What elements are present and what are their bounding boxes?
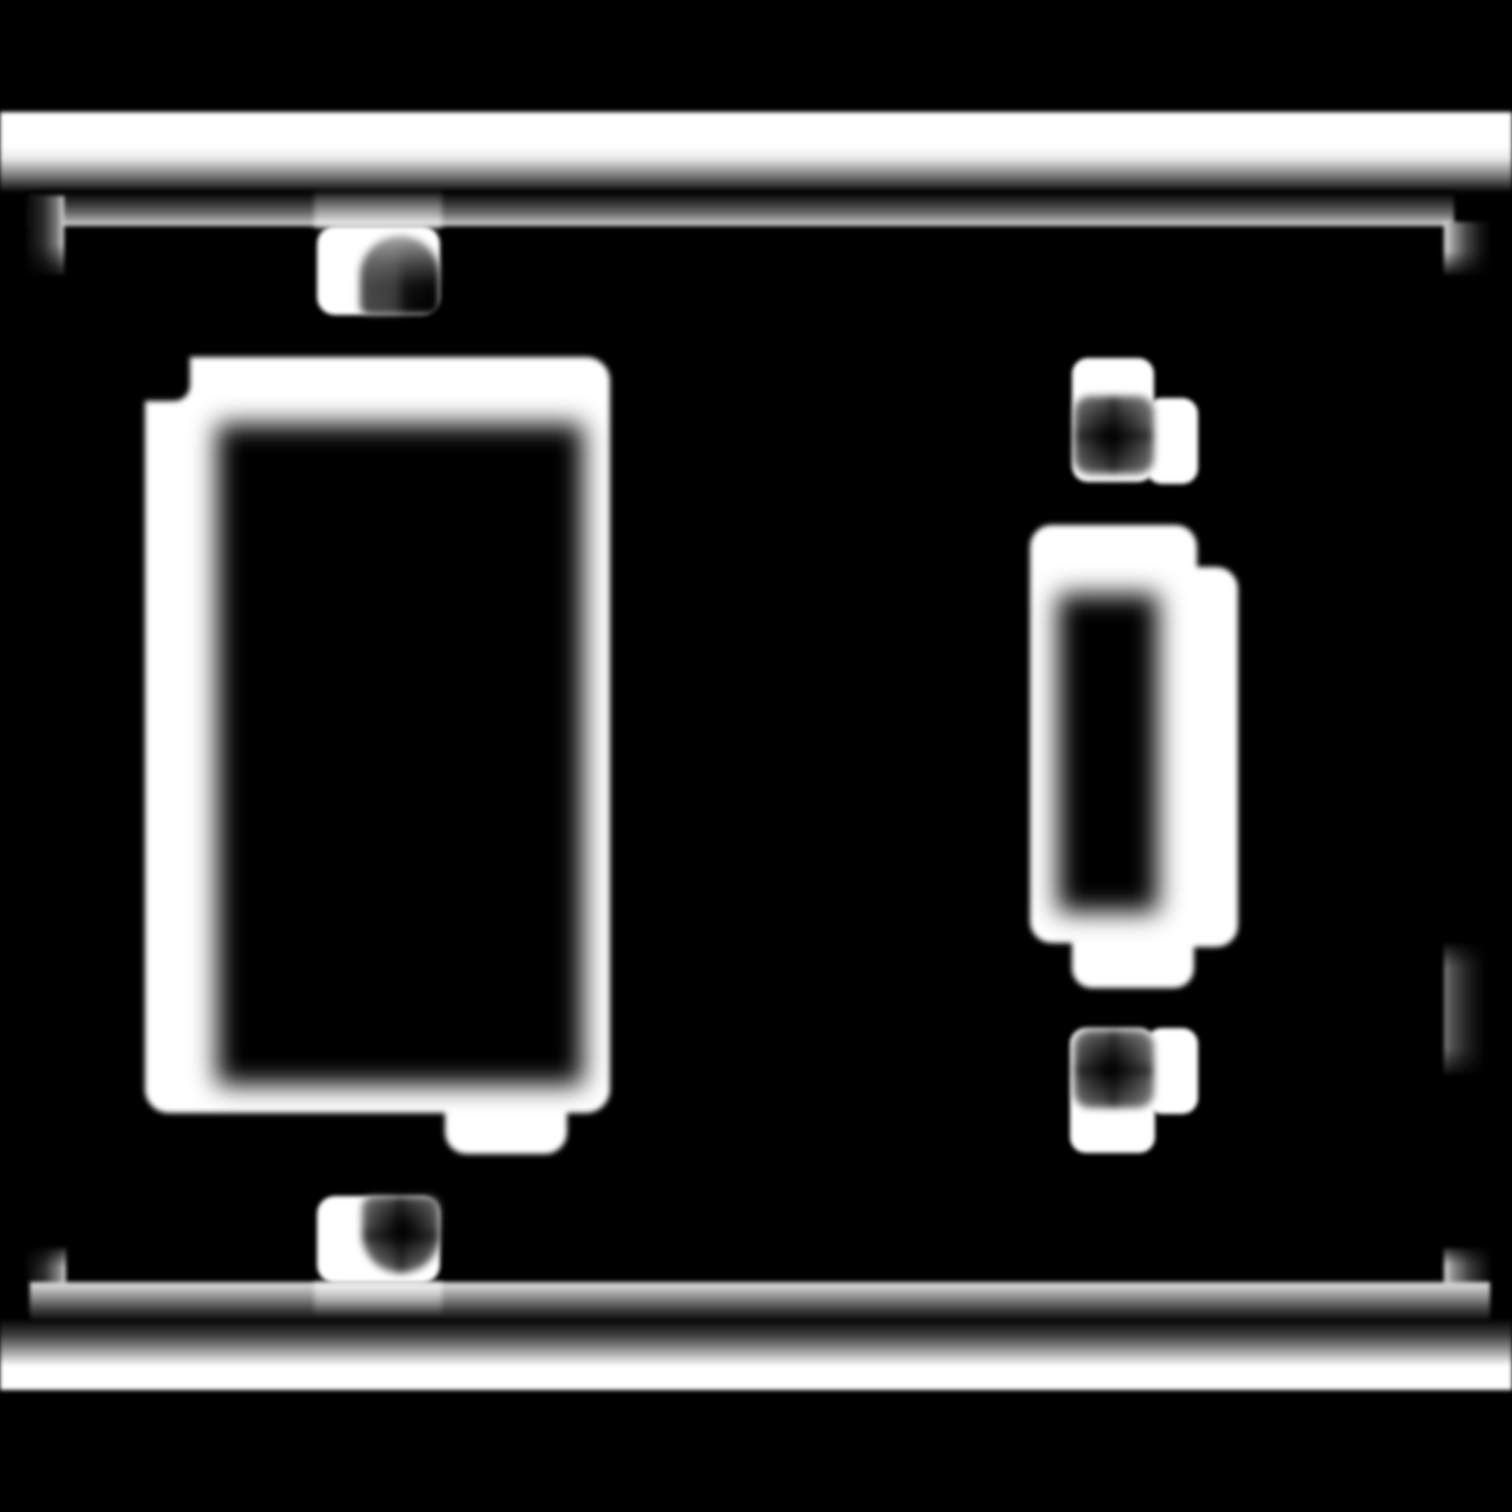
frame-right-segment: [1444, 944, 1486, 1074]
toggle-opening: [1058, 594, 1158, 912]
scene: [0, 0, 1512, 1512]
frame-bottom-edge-highlight: [314, 1282, 442, 1314]
frame-top-edge-highlight: [314, 192, 442, 228]
wall-plate-figure: [0, 0, 1512, 1512]
rocker-frame-step: [132, 344, 190, 401]
rocker-screw-bottom: [362, 1196, 440, 1273]
frame-corner-top-right: [1444, 222, 1492, 274]
frame-top-edge: [30, 192, 1454, 226]
rocker-bottom-tab: [445, 1094, 567, 1154]
frame-corner-top-left: [26, 196, 64, 274]
frame-bottom-edge: [30, 1282, 1490, 1324]
rocker-opening: [217, 424, 583, 1085]
toggle-screw-bottom: [1074, 1030, 1154, 1108]
bottom-plate-band: [0, 1320, 1512, 1390]
toggle-bottom-tab: [1072, 936, 1194, 988]
toggle-frame-offset: [1148, 567, 1238, 947]
top-plate-band: [0, 112, 1512, 192]
rocker-screw-top: [360, 236, 440, 315]
toggle-screw-top: [1074, 396, 1154, 474]
